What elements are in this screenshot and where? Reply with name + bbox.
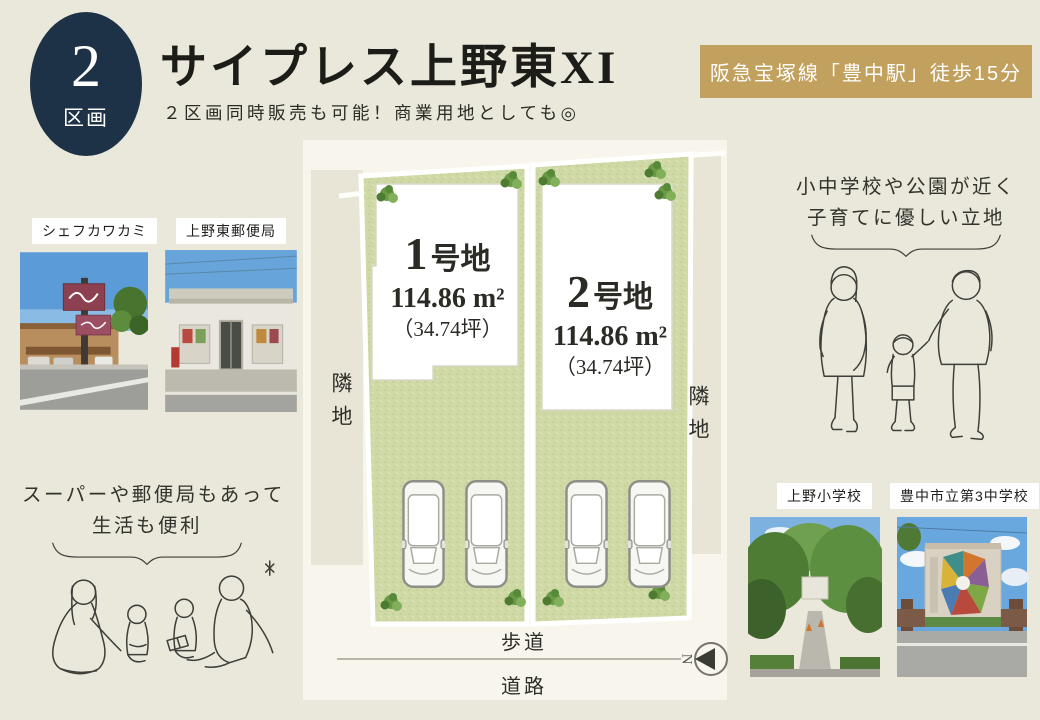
adjacent-strip-left (311, 170, 363, 565)
lot-1-number: 1 (405, 228, 428, 279)
nearby-message: スーパーや郵便局もあって 生活も便利 (22, 480, 272, 542)
schools-message-line1: 小中学校や公園が近く (778, 172, 1034, 203)
lot-2-number: 2 (567, 266, 590, 317)
station-access-banner: 阪急宝塚線「豊中駅」徒歩15分 (700, 45, 1032, 98)
photo-label-elementary-school: 上野小学校 (777, 483, 872, 509)
photo-ueno-elementary-school (748, 517, 882, 677)
adjacent-land-label-right: 隣地 (683, 385, 713, 451)
adjacent-land-label-left: 隣地 (326, 372, 356, 438)
page-title: サイプレス上野東XI (160, 28, 618, 97)
flyer-page: { "badge": {"number": "2", "label": "区画"… (0, 0, 1040, 720)
lot-count-number: 2 (71, 36, 101, 96)
page-subtitle: ２区画同時販売も可能！商業用地としても◎ (163, 100, 579, 125)
car-lot1-right (464, 481, 509, 587)
schools-message-line2: 子育てに優しい立地 (778, 203, 1034, 234)
lot-2-area: 114.86 m² (531, 321, 689, 353)
walking-family-illustration (782, 252, 1030, 464)
photo-ueno-higashi-post-office (162, 250, 300, 412)
car-lot2-right (627, 481, 672, 587)
schools-message: 小中学校や公園が近く 子育てに優しい立地 (778, 172, 1034, 234)
station-access-text: 阪急宝塚線「豊中駅」徒歩15分 (710, 57, 1022, 86)
lot-2-name: 2号地 (531, 266, 689, 319)
nearby-message-line2: 生活も便利 (22, 511, 272, 542)
school-mural (941, 551, 989, 615)
site-plan-drawing (303, 140, 727, 700)
photo-label-post-office: 上野東郵便局 (176, 218, 286, 244)
lot-1-name: 1号地 (365, 228, 530, 281)
lot-1-area: 114.86 m² (365, 283, 530, 315)
road-label: 道路 (303, 670, 727, 699)
sidewalk-label: 歩道 (303, 626, 727, 655)
photo-chef-kawakami-supermarket (20, 250, 148, 412)
nearby-message-line1: スーパーや郵便局もあって (22, 480, 272, 511)
lot-2-label: 2号地 114.86 m² （34.74坪） (531, 266, 689, 379)
lot-1-tsubo: （34.74坪） (365, 317, 530, 341)
photo-label-junior-high-school: 豊中市立第3中学校 (890, 483, 1039, 509)
lot-2-suffix: 号地 (593, 281, 653, 314)
sitting-family-illustration (28, 556, 280, 712)
car-lot1-left (401, 481, 446, 587)
road-divider-line (337, 658, 681, 660)
compass-letter: N (679, 654, 695, 665)
lot-1-label: 1号地 114.86 m² （34.74坪） (365, 228, 530, 341)
photo-label-supermarket: シェフカワカミ (32, 218, 157, 244)
compass-icon: N (677, 636, 733, 682)
lot-1-suffix: 号地 (431, 243, 491, 276)
car-lot2-left (564, 481, 609, 587)
lot-count-badge: 2 区画 (30, 12, 142, 156)
lot-2-tsubo: （34.74坪） (531, 355, 689, 379)
photo-toyonaka-3rd-junior-high (892, 517, 1032, 677)
lot-count-label: 区画 (63, 102, 109, 132)
site-plan: 隣地 隣地 1号地 114.86 m² （34.74坪） 2号地 114.86 … (303, 140, 727, 700)
